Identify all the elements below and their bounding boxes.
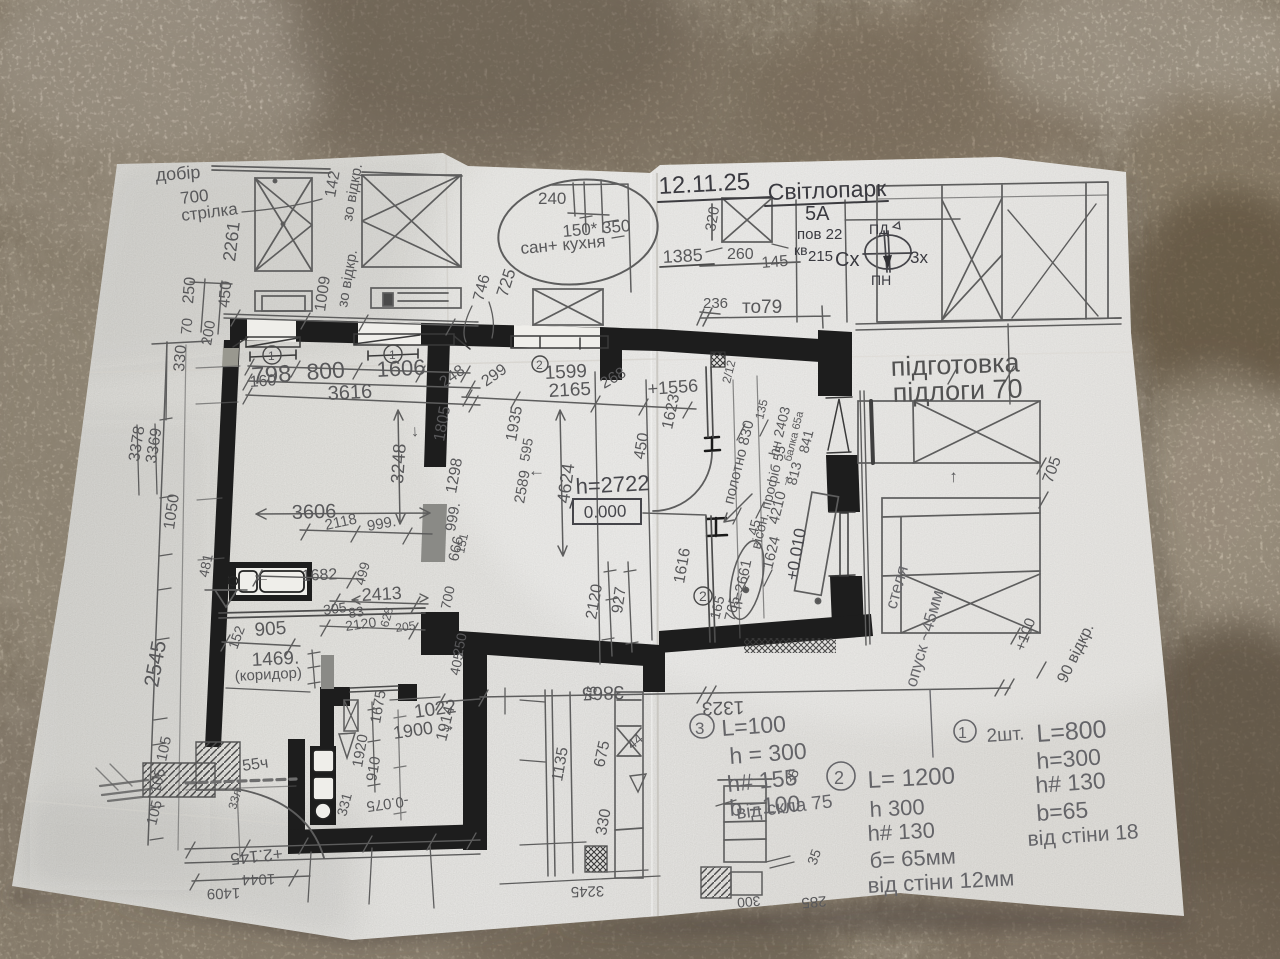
svg-text:h# 130: h# 130 [1035, 767, 1107, 798]
svg-text:2413: 2413 [361, 583, 402, 605]
svg-text:Світлопарк: Світлопарк [767, 175, 887, 205]
svg-text:260: 260 [727, 246, 754, 263]
svg-text:пов 22: пов 22 [797, 226, 842, 243]
svg-text:←: ← [254, 569, 270, 586]
svg-text:2: 2 [699, 588, 707, 604]
svg-text:2165: 2165 [548, 379, 591, 402]
svg-text:L= 1200: L= 1200 [867, 762, 956, 794]
svg-text:305: 305 [322, 599, 348, 618]
svg-text:(коридор): (коридор) [234, 664, 302, 684]
svg-text:205: 205 [394, 618, 416, 635]
svg-text:905: 905 [254, 618, 287, 641]
svg-text:215: 215 [808, 248, 833, 265]
svg-text:2: 2 [834, 768, 844, 788]
svg-text:кв: кв [794, 242, 808, 258]
svg-text:450: 450 [216, 280, 235, 308]
svg-text:L=100: L=100 [721, 711, 787, 741]
svg-text:→: → [408, 424, 426, 441]
svg-text:h=2722: h=2722 [575, 470, 650, 499]
svg-text:800: 800 [306, 356, 346, 385]
svg-text:2: 2 [536, 358, 543, 372]
svg-text:236: 236 [703, 295, 728, 312]
svg-text:3: 3 [695, 719, 704, 738]
svg-text:300: 300 [736, 893, 761, 911]
svg-text:3245: 3245 [571, 882, 605, 900]
svg-text:то79: то79 [742, 297, 782, 318]
svg-text:←: ← [528, 461, 545, 480]
svg-text:1682: 1682 [301, 566, 338, 585]
svg-text:1: 1 [958, 725, 967, 742]
svg-text:b=65: b=65 [1036, 796, 1089, 826]
svg-text:добір: добір [155, 162, 201, 185]
svg-text:3248: 3248 [387, 443, 410, 484]
svg-text:1385: 1385 [662, 245, 703, 267]
svg-text:2шт.: 2шт. [986, 723, 1025, 747]
svg-text:3х: 3х [910, 248, 928, 267]
svg-text:1044: 1044 [242, 870, 276, 888]
svg-text:5А: 5А [805, 203, 830, 225]
svg-text:1: 1 [389, 348, 396, 362]
svg-text:ПД: ПД [869, 221, 889, 237]
svg-text:160: 160 [249, 372, 277, 391]
svg-text:330: 330 [171, 344, 190, 372]
svg-text:250: 250 [180, 276, 199, 304]
svg-text:h# 130: h# 130 [867, 818, 936, 846]
svg-text:1409: 1409 [207, 884, 241, 902]
svg-text:підлоги 70: підлоги 70 [892, 373, 1023, 408]
svg-text:70: 70 [178, 317, 196, 335]
svg-text:Сх: Сх [835, 249, 859, 271]
svg-text:ПН: ПН [871, 272, 891, 288]
svg-text:285: 285 [801, 892, 827, 911]
svg-text:3616: 3616 [327, 381, 373, 405]
svg-text:→: → [941, 468, 961, 486]
svg-text:240: 240 [538, 189, 566, 208]
svg-text:0.000: 0.000 [583, 502, 626, 522]
svg-text:145: 145 [761, 253, 789, 272]
svg-text:55ч: 55ч [241, 754, 269, 774]
svg-text:1606: 1606 [376, 354, 426, 382]
svg-text:12.11.25: 12.11.25 [658, 168, 751, 200]
svg-text:1: 1 [268, 349, 275, 363]
